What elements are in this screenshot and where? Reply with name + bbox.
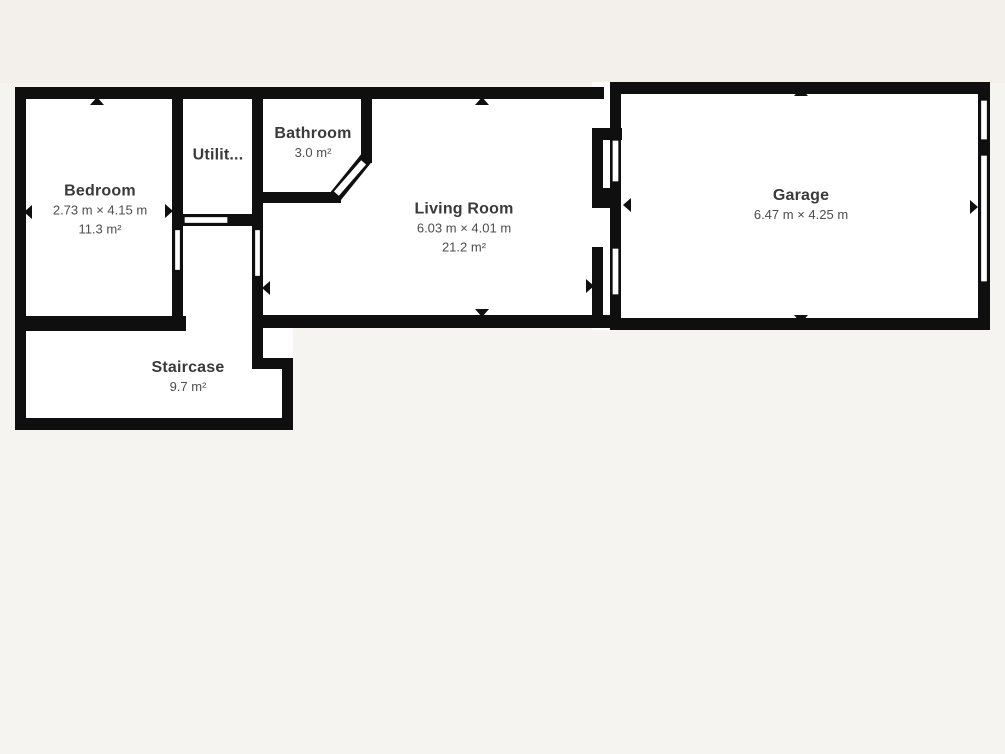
room-area: 9.7 m² bbox=[152, 377, 225, 396]
bedroom-door-opening[interactable] bbox=[175, 230, 181, 271]
bathroom-right-wall[interactable] bbox=[361, 87, 372, 163]
staircase-label[interactable]: Staircase 9.7 m² bbox=[152, 358, 225, 396]
room-name: Bathroom bbox=[274, 124, 351, 143]
living-room-door-opening[interactable] bbox=[255, 230, 261, 277]
living-room-bottom-wall[interactable] bbox=[252, 315, 613, 328]
room-dimensions: 6.03 m × 4.01 m bbox=[414, 219, 513, 238]
living-room-label[interactable]: Living Room 6.03 m × 4.01 m 21.2 m² bbox=[414, 200, 513, 257]
garage-right-window-small[interactable] bbox=[981, 100, 988, 140]
utility-label[interactable]: Utilit... bbox=[193, 146, 244, 165]
staircase-bottom-wall[interactable] bbox=[15, 418, 293, 430]
room-dimensions: 2.73 m × 4.15 m bbox=[53, 201, 147, 220]
room-name: Bedroom bbox=[53, 182, 147, 201]
room-name: Living Room bbox=[414, 200, 513, 219]
room-name: Garage bbox=[754, 186, 848, 205]
utility-door-opening[interactable] bbox=[184, 217, 228, 224]
unit-left-wall[interactable] bbox=[15, 87, 26, 430]
room-name: Staircase bbox=[152, 358, 225, 377]
garage-label[interactable]: Garage 6.47 m × 4.25 m bbox=[754, 186, 848, 224]
room-name: Utilit... bbox=[193, 146, 244, 165]
garage-right-window-large[interactable] bbox=[981, 155, 988, 282]
room-area: 3.0 m² bbox=[274, 143, 351, 162]
room-area: 11.3 m² bbox=[53, 220, 147, 239]
bathroom-label[interactable]: Bathroom 3.0 m² bbox=[274, 124, 351, 162]
bedroom-label[interactable]: Bedroom 2.73 m × 4.15 m 11.3 m² bbox=[53, 182, 147, 239]
garage-left-window[interactable] bbox=[612, 140, 619, 182]
bedroom-right-wall[interactable] bbox=[172, 98, 183, 316]
living-room-right-wall-lower[interactable] bbox=[592, 247, 603, 315]
unit-top-wall[interactable] bbox=[15, 87, 604, 99]
corridor-right-wall[interactable] bbox=[252, 98, 263, 316]
bathroom-bottom-wall[interactable] bbox=[252, 192, 341, 203]
room-area: 21.2 m² bbox=[414, 238, 513, 257]
garage-side-door-opening[interactable] bbox=[612, 248, 619, 295]
floor-plan-canvas[interactable]: Bedroom 2.73 m × 4.15 m 11.3 m² Utilit..… bbox=[0, 0, 1005, 754]
room-dimensions: 6.47 m × 4.25 m bbox=[754, 205, 848, 224]
